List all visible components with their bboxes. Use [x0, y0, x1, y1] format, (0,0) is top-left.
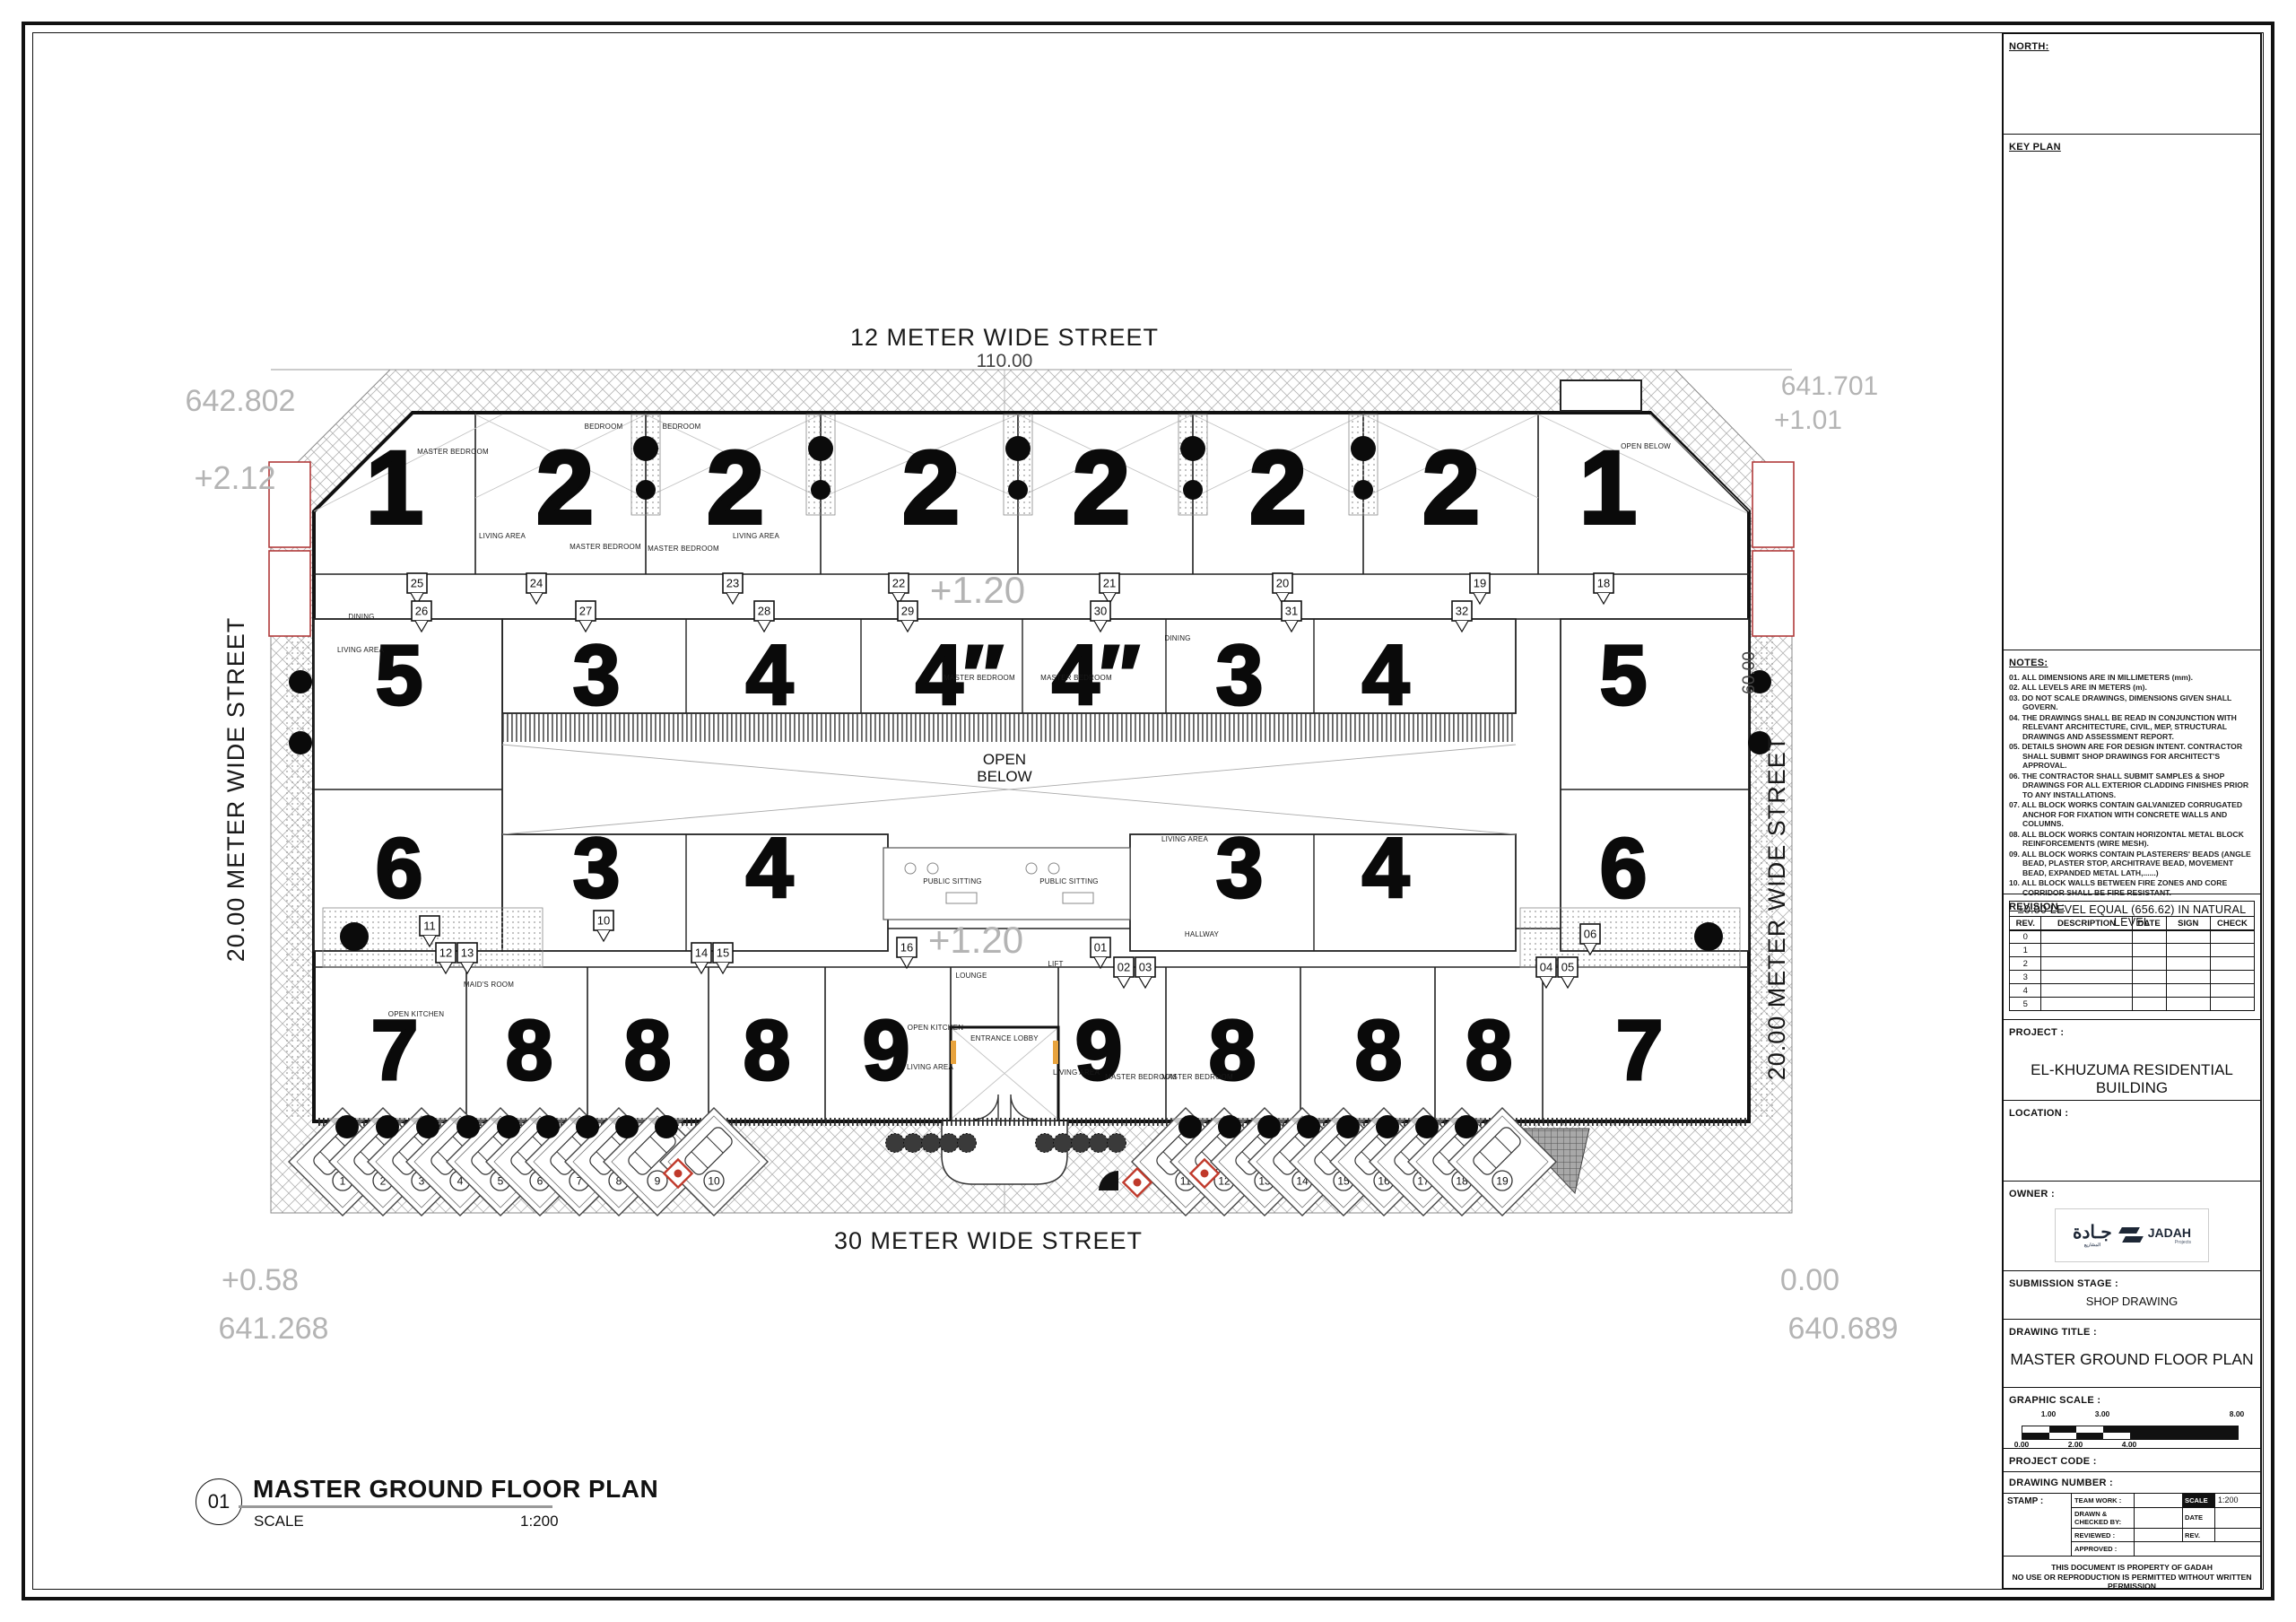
room-label: LIVING AREA — [337, 646, 384, 654]
north-label: NORTH: — [2009, 41, 2049, 52]
revision-cell — [2132, 944, 2166, 957]
room-label: ENTRANCE LOBBY — [970, 1034, 1039, 1042]
unit-number: 1 — [366, 431, 423, 545]
light-well — [631, 414, 660, 515]
tree-icon — [1005, 436, 1031, 461]
svg-text:03: 03 — [1139, 961, 1152, 974]
street-label-top: 12 METER WIDE STREET — [850, 324, 1159, 351]
room-label: HALLWAY — [1185, 930, 1220, 938]
note-item: 06. THE CONTRACTOR SHALL SUBMIT SAMPLES … — [2009, 772, 2255, 799]
room-label: DINING — [348, 613, 374, 621]
revision-cell: 1 — [2010, 944, 2041, 957]
unit-number: 3 — [573, 628, 621, 723]
project-label: PROJECT : — [2009, 1027, 2064, 1038]
revision-cell — [2132, 930, 2166, 944]
svg-text:27: 27 — [579, 605, 592, 618]
revision-cell — [2210, 957, 2254, 971]
dimension-110: 110.00 — [977, 351, 1033, 371]
revision-cell — [2041, 944, 2132, 957]
svg-text:01: 01 — [1094, 941, 1107, 955]
revision-cell — [2132, 998, 2166, 1011]
submission-value: SHOP DRAWING — [2004, 1295, 2260, 1308]
project-code-label: PROJECT CODE : — [2009, 1456, 2097, 1467]
svg-text:05: 05 — [1561, 961, 1574, 974]
revision-cell — [2210, 944, 2254, 957]
revision-header: REV. — [2010, 917, 2041, 930]
revision-cell — [2132, 971, 2166, 984]
kiosk-outline — [1752, 551, 1794, 636]
revision-cell — [2041, 957, 2132, 971]
svg-text:04: 04 — [1540, 961, 1552, 974]
room-label: LIVING AREA — [907, 1063, 953, 1071]
room-label: MAID'S ROOM — [464, 981, 514, 989]
room-label: MASTER BEDROOM — [417, 448, 489, 456]
unit-number: 2 — [1422, 431, 1480, 545]
tree-icon — [289, 731, 312, 754]
owner-logo-arabic: جـادة المشاريع — [2073, 1224, 2112, 1248]
notes-section: NOTES: 01. ALL DIMENSIONS ARE IN MILLIME… — [2004, 650, 2260, 894]
location-label: LOCATION : — [2009, 1108, 2068, 1119]
tree-icon — [1008, 480, 1028, 500]
note-item: 09. ALL BLOCK WORKS CONTAIN PLASTERERS' … — [2009, 850, 2255, 877]
spot-elevation: 642.802 — [186, 384, 296, 418]
note-item: 05. DETAILS SHOWN ARE FOR DESIGN INTENT.… — [2009, 742, 2255, 770]
dimension-60: 60.00 — [1740, 651, 1759, 694]
stamp-section: STAMP : TEAM WORK : SCALE 1:200 DRAWN & … — [2004, 1494, 2260, 1557]
revision-header: DATE — [2132, 917, 2166, 930]
revision-cell — [2210, 998, 2254, 1011]
view-title-text: MASTER GROUND FLOOR PLAN — [253, 1475, 658, 1504]
room-label: LIVING AREA — [479, 532, 526, 540]
entrance-lobby — [942, 1027, 1067, 1184]
property-note-line2: NO USE OR REPRODUCTION IS PERMITTED WITH… — [2009, 1573, 2255, 1591]
revision-cell — [2210, 930, 2254, 944]
unit-number: 9 — [1075, 1003, 1123, 1098]
level-annotation: +1.20 — [930, 569, 1025, 611]
key-plan-section: KEY PLAN — [2004, 135, 2260, 650]
reviewed-label: REVIEWED : — [2072, 1529, 2135, 1542]
drawing-number-label: DRAWING NUMBER : — [2009, 1478, 2113, 1488]
room-label: OPEN KITCHEN — [388, 1010, 444, 1018]
svg-text:11: 11 — [423, 920, 436, 933]
unit-number: 5 — [376, 628, 423, 723]
revision-cell — [2166, 998, 2210, 1011]
street-label-right: 20.00 METER WIDE STREET — [1763, 736, 1790, 1081]
svg-text:14: 14 — [695, 946, 708, 960]
tree-icon — [811, 480, 831, 500]
tree-icon — [633, 436, 658, 461]
view-number-bubble: 01 — [196, 1478, 242, 1525]
svg-text:32: 32 — [1456, 605, 1468, 618]
revision-header: CHECK — [2210, 917, 2254, 930]
drawing-number-section: DRAWING NUMBER : — [2004, 1472, 2260, 1494]
revision-cell — [2166, 984, 2210, 998]
stamp-label: STAMP : — [2004, 1494, 2072, 1556]
room-label: LIFT — [1048, 960, 1063, 968]
unit-number: 8 — [744, 1003, 791, 1098]
unit-number: 2 — [902, 431, 960, 545]
spot-elevation: +0.58 — [222, 1263, 299, 1297]
project-name: EL-KHUZUMA RESIDENTIAL BUILDING — [2004, 1061, 2260, 1097]
room-label: LIVING AREA — [1161, 835, 1208, 843]
parking-number: 10 — [708, 1175, 720, 1188]
unit-number: 6 — [1600, 821, 1648, 916]
shrub-icon — [1072, 1134, 1091, 1153]
revision-cell — [2210, 984, 2254, 998]
svg-text:02: 02 — [1118, 961, 1130, 974]
room-label: LOUNGE — [956, 972, 987, 980]
parking-number: 9 — [655, 1175, 661, 1188]
room-label: PUBLIC SITTING — [923, 877, 981, 885]
revision-cell — [2041, 930, 2132, 944]
revision-table: REV.DESCRIPTIONDATESIGNCHECK012345 — [2009, 916, 2255, 1011]
room-label: MASTER BEDROOM — [570, 543, 641, 551]
unit-number: 4 — [1362, 628, 1410, 723]
drawing-title-section: DRAWING TITLE : MASTER GROUND FLOOR PLAN — [2004, 1320, 2260, 1388]
unit-number: 8 — [1355, 1003, 1403, 1098]
revision-title: REVISION : — [2009, 902, 2065, 912]
note-item: 08. ALL BLOCK WORKS CONTAIN HORIZONTAL M… — [2009, 830, 2255, 849]
street-label-left: 20.00 METER WIDE STREET — [222, 617, 249, 963]
tree-icon — [636, 480, 656, 500]
scale-key: SCALE — [2183, 1494, 2215, 1507]
svg-text:23: 23 — [726, 577, 739, 590]
tree-icon — [1694, 922, 1723, 951]
property-note-section: THIS DOCUMENT IS PROPERTY OF GADAH NO US… — [2004, 1557, 2260, 1595]
location-section: LOCATION : — [2004, 1101, 2260, 1182]
owner-logo-latin: JADAH Projects — [2148, 1226, 2191, 1245]
spot-elevation: 641.268 — [219, 1312, 329, 1346]
svg-text:16: 16 — [900, 941, 913, 955]
note-item: 03. DO NOT SCALE DRAWINGS, DIMENSIONS GI… — [2009, 693, 2255, 712]
svg-text:12: 12 — [439, 946, 452, 960]
light-well — [1349, 414, 1378, 515]
svg-text:20: 20 — [1276, 577, 1289, 590]
svg-text:22: 22 — [892, 577, 905, 590]
shrub-icon — [940, 1134, 959, 1153]
svg-text:26: 26 — [415, 605, 428, 618]
title-block: NORTH: KEY PLAN NOTES: 01. ALL DIMENSION… — [2002, 32, 2262, 1590]
view-title: 01 MASTER GROUND FLOOR PLAN SCALE 1:200 — [179, 1473, 861, 1545]
room-label: PUBLIC SITTING — [1039, 877, 1098, 885]
revision-cell — [2166, 971, 2210, 984]
unit-number: 9 — [863, 1003, 910, 1098]
svg-text:06: 06 — [1584, 928, 1596, 941]
unit-number: 2 — [536, 431, 594, 545]
room-label: LIVING AREA — [1053, 1068, 1100, 1077]
svg-text:10: 10 — [597, 914, 610, 928]
room-label: DINING — [1164, 634, 1190, 642]
light-well — [806, 414, 835, 515]
drawing-sheet: { "plan": { "streets": { "top": "12 METE… — [0, 0, 2296, 1622]
unit-number: 7 — [1616, 1003, 1664, 1098]
notes-list: 01. ALL DIMENSIONS ARE IN MILLIMETERS (m… — [2009, 673, 2255, 897]
note-item: 02. ALL LEVELS ARE IN METERS (m). — [2009, 683, 2255, 692]
skylight — [1561, 380, 1641, 411]
svg-text:24: 24 — [530, 577, 543, 590]
jadah-logo-icon — [2118, 1226, 2142, 1244]
tree-icon — [1183, 480, 1203, 500]
graphic-scale-section: GRAPHIC SCALE : 1.00 3.00 8.00 0.00 2.00 — [2004, 1388, 2260, 1449]
revision-cell — [2166, 930, 2210, 944]
shrub-icon — [1054, 1134, 1073, 1153]
shrub-icon — [922, 1134, 941, 1153]
kiosk-outline — [269, 551, 310, 636]
property-note-line1: THIS DOCUMENT IS PROPERTY OF GADAH — [2009, 1563, 2255, 1573]
north-section: NORTH: — [2004, 34, 2260, 135]
revision-cell — [2041, 984, 2132, 998]
graphic-scale-label: GRAPHIC SCALE : — [2009, 1395, 2100, 1406]
shrub-icon — [1036, 1134, 1055, 1153]
revision-section: REVISION : REV.DESCRIPTIONDATESIGNCHECK0… — [2004, 894, 2260, 1020]
unit-number: 8 — [1465, 1003, 1513, 1098]
revision-cell: 2 — [2010, 957, 2041, 971]
svg-text:19: 19 — [1474, 577, 1486, 590]
tree-icon — [1180, 436, 1205, 461]
svg-text:28: 28 — [758, 605, 770, 618]
date-key: DATE — [2183, 1508, 2215, 1528]
revision-cell — [2210, 971, 2254, 984]
shrub-icon — [886, 1134, 905, 1153]
svg-text:15: 15 — [717, 946, 729, 960]
spot-elevation: +2.12 — [194, 459, 275, 496]
unit-number: 3 — [1216, 628, 1264, 723]
svg-text:31: 31 — [1285, 605, 1298, 618]
tree-icon — [289, 670, 312, 693]
unit-number: 4 — [1362, 821, 1410, 916]
svg-text:21: 21 — [1103, 577, 1116, 590]
rev-key: REV. — [2183, 1529, 2215, 1542]
drawing-title-value: MASTER GROUND FLOOR PLAN — [2004, 1350, 2260, 1369]
note-item: 07. ALL BLOCK WORKS CONTAIN GALVANIZED C… — [2009, 800, 2255, 828]
spot-elevation: 641.701 — [1781, 371, 1878, 401]
room-label: OPEN KITCHEN — [908, 1024, 963, 1032]
room-label: BEDROOM — [663, 423, 701, 431]
revision-header: DESCRIPTION — [2041, 917, 2132, 930]
project-section: PROJECT : EL-KHUZUMA RESIDENTIAL BUILDIN… — [2004, 1020, 2260, 1101]
tree-icon — [1351, 436, 1376, 461]
shrub-icon — [1108, 1134, 1126, 1153]
room-label: MASTER BEDROOM — [1161, 1073, 1233, 1081]
revision-cell — [2041, 971, 2132, 984]
spot-elevation: 640.689 — [1788, 1312, 1899, 1346]
light-well — [1004, 414, 1032, 515]
svg-text:18: 18 — [1597, 577, 1610, 590]
svg-text:25: 25 — [411, 577, 423, 590]
spot-elevation: 0.00 — [1780, 1263, 1839, 1297]
revision-cell — [2166, 944, 2210, 957]
tree-icon — [340, 922, 369, 951]
revision-cell: 3 — [2010, 971, 2041, 984]
room-label: LIVING AREA — [733, 532, 779, 540]
room-label: OPEN BELOW — [1621, 442, 1671, 450]
unit-number: 2 — [1073, 431, 1130, 545]
shrub-icon — [958, 1134, 977, 1153]
svg-text:30: 30 — [1094, 605, 1107, 618]
unit-number: 2 — [707, 431, 764, 545]
project-code-section: PROJECT CODE : — [2004, 1449, 2260, 1472]
open-below-label: BELOW — [977, 768, 1031, 785]
spot-elevation: +1.01 — [1774, 405, 1842, 435]
unit-number: 4 — [746, 628, 794, 723]
room-label: BEDROOM — [585, 423, 623, 431]
notes-title: NOTES: — [2009, 658, 2048, 668]
revision-cell — [2132, 984, 2166, 998]
scale-value: 1:200 — [2215, 1494, 2260, 1507]
owner-label: OWNER : — [2009, 1189, 2055, 1199]
unit-number: 6 — [376, 821, 423, 916]
unit-number: 8 — [506, 1003, 553, 1098]
room-label: MASTER BEDROOM — [1040, 674, 1112, 682]
note-item: 01. ALL DIMENSIONS ARE IN MILLIMETERS (m… — [2009, 673, 2255, 682]
submission-section: SUBMISSION STAGE : SHOP DRAWING — [2004, 1271, 2260, 1320]
revision-cell: 4 — [2010, 984, 2041, 998]
parking-number: 19 — [1496, 1175, 1509, 1188]
open-below-label: OPEN — [983, 751, 1026, 768]
unit-number: 8 — [1209, 1003, 1257, 1098]
shrub-icon — [1090, 1134, 1109, 1153]
note-item: 04. THE DRAWINGS SHALL BE READ IN CONJUN… — [2009, 713, 2255, 741]
room-label: MASTER BEDROOM — [944, 674, 1015, 682]
approved-label: APPROVED : — [2072, 1542, 2135, 1556]
view-title-underline — [239, 1505, 552, 1508]
drawn-label: DRAWN & CHECKED BY: — [2072, 1508, 2135, 1528]
unit-number: 2 — [1249, 431, 1307, 545]
revision-cell: 5 — [2010, 998, 2041, 1011]
teamwork-label: TEAM WORK : — [2072, 1494, 2135, 1507]
revision-cell — [2132, 957, 2166, 971]
shrub-icon — [904, 1134, 923, 1153]
key-plan-label: KEY PLAN — [2009, 142, 2061, 153]
level-annotation: +1.20 — [928, 919, 1023, 961]
revision-cell — [2041, 998, 2132, 1011]
graphic-scale-bar: 1.00 3.00 8.00 0.00 2.00 4.00 — [2009, 1411, 2255, 1452]
light-well — [1178, 414, 1207, 515]
unit-number: 8 — [624, 1003, 672, 1098]
view-scale-label: SCALE — [254, 1513, 304, 1530]
owner-logo: JADAH Projects جـادة المشاريع — [2055, 1208, 2209, 1262]
unit-number: 4 — [746, 821, 794, 916]
revision-cell — [2166, 957, 2210, 971]
submission-label: SUBMISSION STAGE : — [2009, 1278, 2118, 1289]
unit-number: 5 — [1600, 628, 1648, 723]
unit-number: 3 — [1216, 821, 1264, 916]
drawing-title-label: DRAWING TITLE : — [2009, 1327, 2097, 1338]
svg-text:29: 29 — [901, 605, 914, 618]
owner-section: OWNER : JADAH Projects جـادة المشاريع — [2004, 1182, 2260, 1271]
kiosk-outline — [1752, 462, 1794, 547]
revision-cell: 0 — [2010, 930, 2041, 944]
view-scale-value: 1:200 — [520, 1513, 559, 1530]
svg-text:13: 13 — [461, 946, 474, 960]
tree-icon — [1353, 480, 1373, 500]
street-label-bottom: 30 METER WIDE STREET — [834, 1227, 1143, 1254]
floor-plan-drawing: 12345678910111213141516171819 1222222153… — [0, 0, 2296, 1622]
tree-icon — [808, 436, 833, 461]
room-label: MASTER BEDROOM — [648, 545, 719, 553]
revision-header: SIGN — [2166, 917, 2210, 930]
unit-number: 3 — [573, 821, 621, 916]
